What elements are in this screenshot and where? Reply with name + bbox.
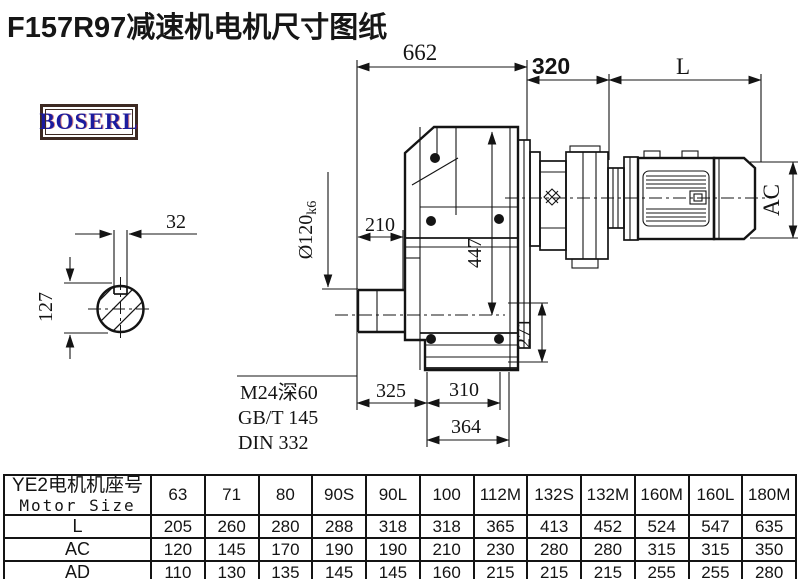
cell: 145 (312, 561, 366, 579)
callout-din: DIN 332 (238, 432, 309, 454)
cell: 215 (474, 561, 528, 579)
cell: 230 (474, 538, 528, 561)
cell: 280 (527, 538, 581, 561)
side-view-shaft-section: 32 127 (35, 211, 197, 366)
header-en: Motor Size (5, 497, 150, 515)
cell: 210 (420, 538, 474, 561)
callout-gbt: GB/T 145 (238, 407, 318, 429)
cell: 170 (259, 538, 313, 561)
dim-310-label: 310 (449, 379, 479, 401)
cell: 255 (689, 561, 743, 579)
dim-32-label: 32 (166, 211, 186, 233)
header-cn: YE2电机机座号 (5, 476, 150, 497)
motor-size-table: YE2电机机座号 Motor Size 63 71 80 90S 90L 100… (3, 474, 797, 579)
dim-shaft-label: Ø120k6 (295, 201, 320, 259)
dim-320-label: 320 (532, 53, 570, 79)
dim-AC-label: AC (759, 184, 784, 216)
col-header: 90S (312, 475, 366, 515)
col-header: 160L (689, 475, 743, 515)
cell: 110 (151, 561, 205, 579)
col-header: 180M (742, 475, 796, 515)
dim-210-label: 210 (365, 214, 395, 236)
cell: 280 (742, 561, 796, 579)
col-header: 100 (420, 475, 474, 515)
col-header: 63 (151, 475, 205, 515)
cell: 288 (312, 515, 366, 538)
dim-662-label: 662 (403, 40, 438, 65)
cell: 315 (635, 538, 689, 561)
col-header: 90L (366, 475, 420, 515)
dim-447-label: 447 (464, 238, 486, 268)
cell: 145 (366, 561, 420, 579)
col-header: 132M (581, 475, 635, 515)
cell: 413 (527, 515, 581, 538)
cell: 215 (581, 561, 635, 579)
callout-thread: M24深60 (240, 381, 318, 404)
cell: 365 (474, 515, 528, 538)
shaft-tolerance: k6 (305, 201, 320, 215)
motor-assembly (505, 140, 772, 348)
cell: 255 (635, 561, 689, 579)
cell: 524 (635, 515, 689, 538)
dim-271-label: 271 (513, 318, 535, 348)
cell: 130 (205, 561, 259, 579)
cell: 120 (151, 538, 205, 561)
cell: 280 (581, 538, 635, 561)
row-label: L (4, 515, 151, 538)
cell: 350 (742, 538, 796, 561)
cell: 452 (581, 515, 635, 538)
cell: 547 (689, 515, 743, 538)
shaft-dia: Ø120 (295, 215, 317, 259)
dim-325-label: 325 (376, 380, 406, 402)
cell: 280 (259, 515, 313, 538)
cell: 205 (151, 515, 205, 538)
dim-L-label: L (676, 54, 690, 79)
cell: 160 (420, 561, 474, 579)
col-header: 132S (527, 475, 581, 515)
col-header: 160M (635, 475, 689, 515)
dim-364-label: 364 (451, 416, 481, 438)
drawing-page: F157R97减速机电机尺寸图纸 BOSERL (0, 0, 800, 579)
cell: 190 (312, 538, 366, 561)
table-header-row: YE2电机机座号 Motor Size 63 71 80 90S 90L 100… (4, 475, 796, 515)
row-label: AC (4, 538, 151, 561)
table-row-AC: AC 120 145 170 190 190 210 230 280 280 3… (4, 538, 796, 561)
table-row-AD: AD 110 130 135 145 145 160 215 215 215 2… (4, 561, 796, 579)
col-header: 71 (205, 475, 259, 515)
row-label: AD (4, 561, 151, 579)
table-header-motor-size: YE2电机机座号 Motor Size (4, 475, 151, 515)
front-view-gear-unit (335, 127, 518, 370)
col-header: 80 (259, 475, 313, 515)
table-row-L: L 205 260 280 288 318 318 365 413 452 52… (4, 515, 796, 538)
cell: 190 (366, 538, 420, 561)
cell: 215 (527, 561, 581, 579)
dim-127-label: 127 (35, 292, 57, 322)
cell: 260 (205, 515, 259, 538)
cell: 635 (742, 515, 796, 538)
technical-drawing: 32 127 (0, 0, 800, 462)
cell: 315 (689, 538, 743, 561)
motor-size-table-wrap: YE2电机机座号 Motor Size 63 71 80 90S 90L 100… (3, 474, 797, 579)
col-header: 112M (474, 475, 528, 515)
cell: 318 (366, 515, 420, 538)
cell: 318 (420, 515, 474, 538)
cell: 135 (259, 561, 313, 579)
cell: 145 (205, 538, 259, 561)
